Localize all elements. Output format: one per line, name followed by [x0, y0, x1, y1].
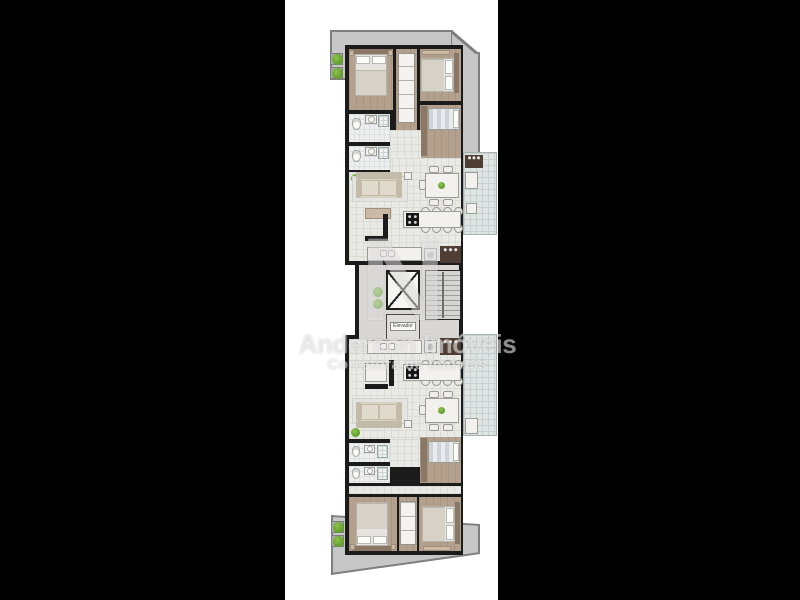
- pillow: [453, 110, 459, 128]
- shower: [377, 467, 388, 480]
- sofa-cushion: [361, 180, 379, 196]
- sofa-arm: [397, 179, 402, 198]
- pillow: [446, 508, 454, 523]
- blanket: [423, 507, 445, 541]
- cooktop: [406, 366, 419, 379]
- plant: [373, 299, 383, 309]
- pillow: [445, 60, 453, 74]
- pillow: [445, 76, 453, 90]
- sofa: [356, 172, 402, 198]
- toilet: [352, 150, 361, 162]
- pantry-wall: [389, 360, 394, 386]
- table-centerpiece: [438, 182, 445, 189]
- dining-chair: [429, 166, 439, 173]
- wardrobe: [400, 501, 416, 545]
- barbecue-grill: [465, 155, 483, 168]
- pillow: [356, 56, 370, 64]
- floorplan-photo: Elevador: [285, 0, 498, 600]
- plant: [351, 428, 360, 437]
- plant: [332, 54, 343, 65]
- sofa-back: [356, 172, 402, 179]
- pillow: [453, 443, 459, 461]
- plant: [333, 536, 344, 547]
- screenshot-canvas: Elevador: [0, 0, 800, 600]
- plant: [333, 522, 344, 533]
- side-table: [404, 420, 412, 428]
- sofa-cushion: [361, 404, 379, 420]
- plant: [332, 68, 343, 79]
- dining-chair: [443, 391, 453, 398]
- pillow: [446, 525, 454, 540]
- side-table: [404, 172, 412, 180]
- elevator-shaft: [386, 270, 420, 310]
- sink: [388, 250, 395, 257]
- pillow: [373, 536, 387, 544]
- dining-chair: [429, 424, 439, 431]
- washing-machine: [424, 248, 437, 261]
- sofa-cushion: [379, 404, 397, 420]
- condenser-unit: [465, 418, 478, 434]
- stair-rail: [442, 272, 444, 318]
- nightstand: [391, 544, 396, 550]
- terrace-edge-line: [331, 552, 481, 575]
- cooktop: [406, 213, 419, 226]
- pillow: [357, 536, 371, 544]
- nightstand: [350, 544, 355, 550]
- dresser: [422, 50, 450, 55]
- table-centerpiece: [438, 407, 445, 414]
- toilet: [352, 468, 360, 479]
- elevator-label: Elevador: [390, 322, 416, 331]
- wardrobe-dark: [421, 438, 427, 482]
- sink: [367, 446, 373, 452]
- nightstand: [388, 50, 393, 56]
- headboard: [455, 502, 460, 544]
- shower: [378, 147, 389, 159]
- hall-bottom-floor: [390, 439, 421, 467]
- blanket: [422, 59, 444, 91]
- headboard: [352, 546, 392, 551]
- sink: [367, 468, 373, 474]
- sink: [380, 343, 387, 350]
- sofa-back: [356, 421, 402, 428]
- hall-bottom-floor-2: [349, 486, 461, 494]
- refrigerator: [365, 363, 387, 382]
- pantry-wall: [365, 236, 388, 241]
- dining-chair: [443, 199, 453, 206]
- shower: [377, 445, 388, 458]
- wardrobe: [398, 53, 415, 123]
- sink: [380, 250, 387, 257]
- dining-chair: [429, 391, 439, 398]
- blanket: [356, 70, 386, 95]
- toilet: [352, 118, 361, 130]
- dining-chair: [443, 424, 453, 431]
- dresser: [423, 546, 451, 551]
- wardrobe-dark: [421, 106, 427, 156]
- plant: [373, 287, 383, 297]
- stove-oven: [440, 246, 461, 263]
- sink: [368, 116, 375, 123]
- sofa: [356, 402, 402, 428]
- shower: [378, 115, 389, 127]
- dining-chair: [429, 199, 439, 206]
- washing-machine: [424, 340, 437, 353]
- terrace-edge-line: [478, 524, 480, 554]
- headboard: [454, 53, 459, 93]
- toilet: [352, 446, 360, 457]
- sink: [368, 148, 375, 155]
- pantry-wall: [365, 384, 388, 389]
- pillow: [372, 56, 386, 64]
- blanket: [357, 503, 387, 529]
- stove-oven: [440, 338, 461, 355]
- nightstand: [349, 50, 354, 56]
- sofa-arm: [397, 402, 402, 421]
- sink: [388, 343, 395, 350]
- sofa-cushion: [379, 180, 397, 196]
- condenser-unit: [465, 172, 478, 189]
- condenser-unit: [466, 203, 477, 214]
- dining-chair: [443, 166, 453, 173]
